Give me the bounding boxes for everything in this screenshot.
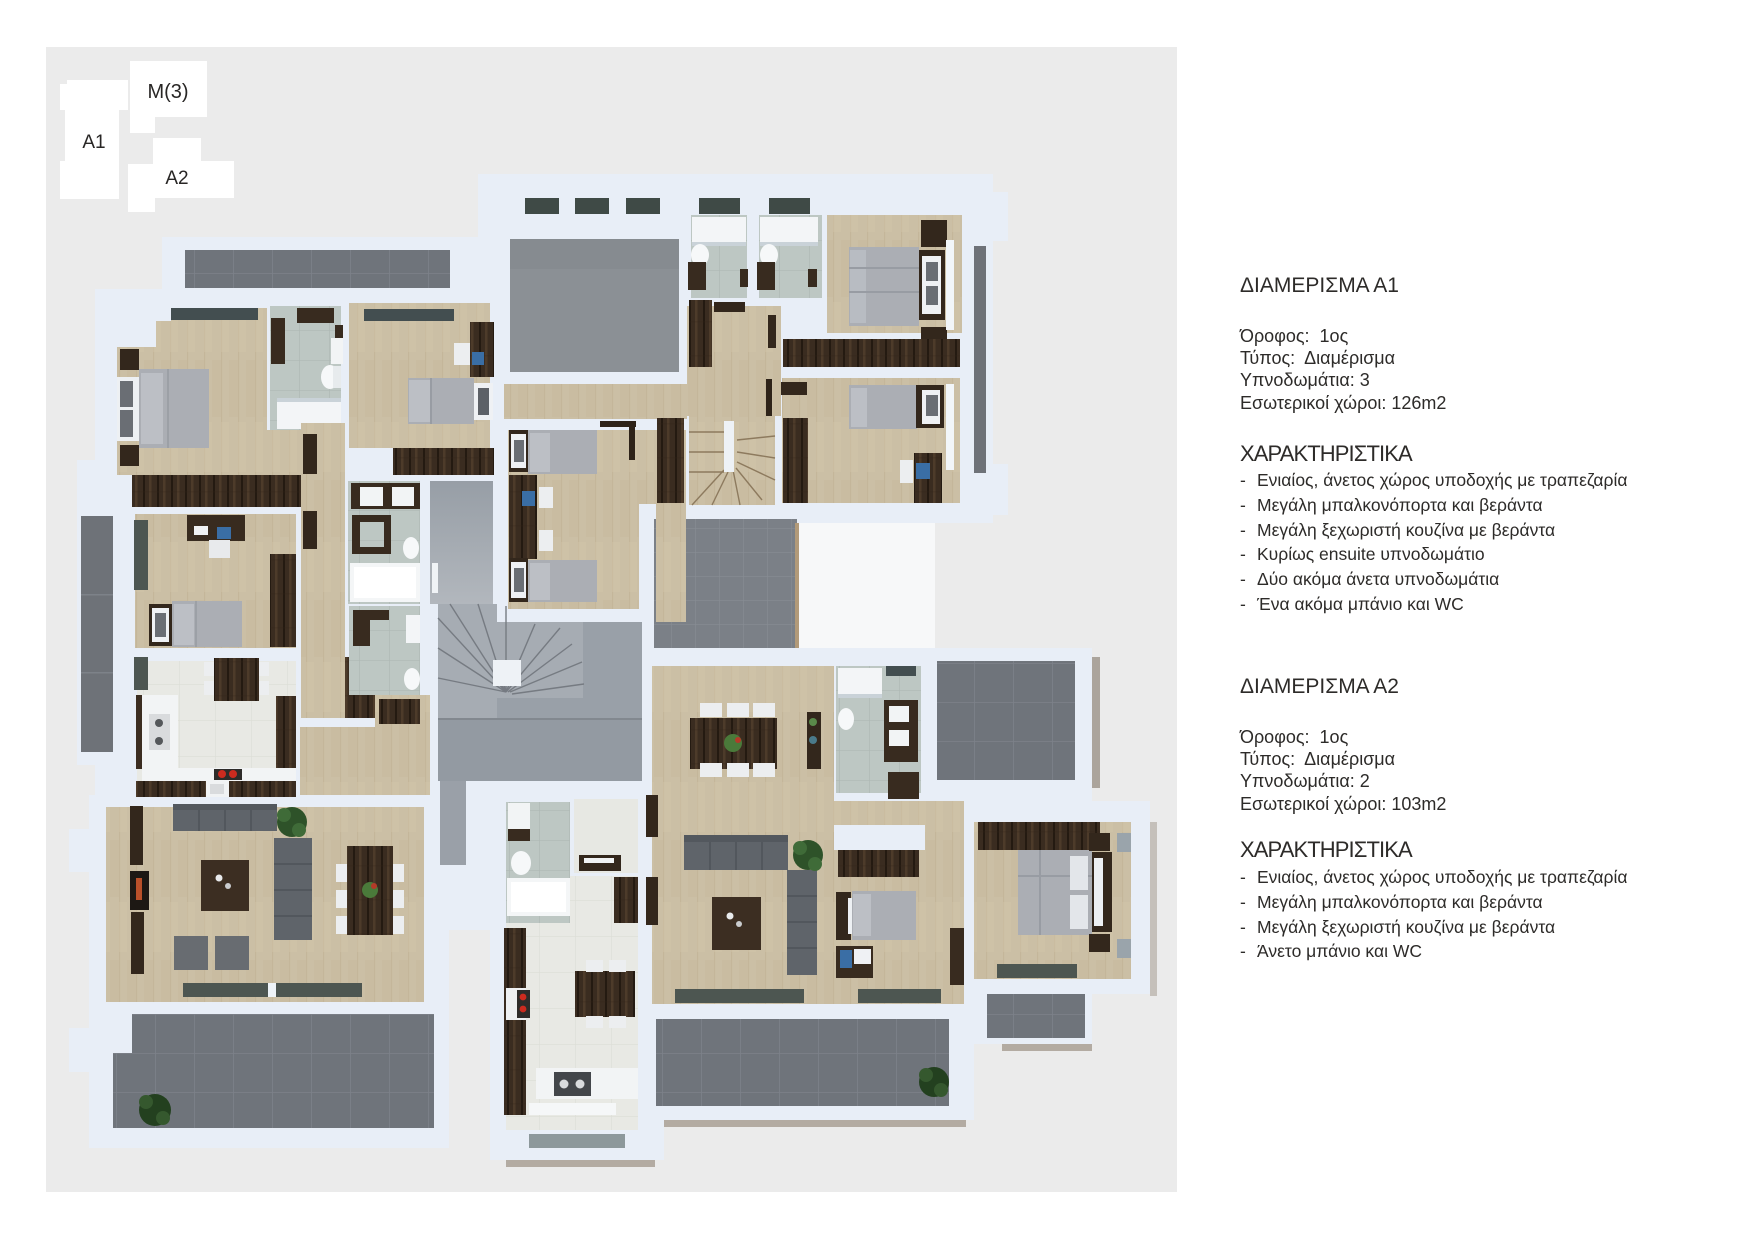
svg-text:A1: A1 xyxy=(82,132,105,153)
svg-text:A2: A2 xyxy=(165,168,188,189)
svg-text:M(3): M(3) xyxy=(147,81,188,103)
